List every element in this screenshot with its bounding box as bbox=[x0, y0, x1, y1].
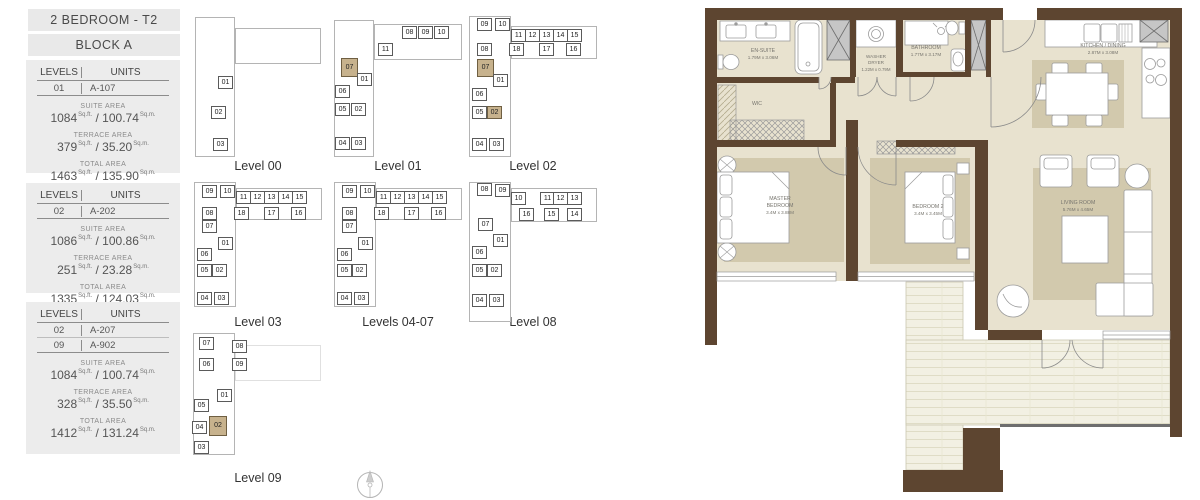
chair-icon bbox=[1086, 115, 1102, 126]
level-unit-row: 09A-902 bbox=[37, 337, 169, 352]
key-plan-levels-04-07: 091011121314150818171607010605020403Leve… bbox=[330, 180, 466, 329]
unit-cell-08: 08 bbox=[477, 43, 492, 56]
bedroom2-label: BEDROOM 2 bbox=[912, 204, 943, 210]
unit-cell-05: 05 bbox=[197, 264, 212, 277]
unit-cell-03: 03 bbox=[489, 138, 504, 151]
wic-label: WIC bbox=[752, 101, 762, 107]
unit-cell-04: 04 bbox=[335, 137, 350, 150]
unit-cell-06: 06 bbox=[197, 248, 212, 261]
suite-area-label: SUITE AREA bbox=[35, 360, 171, 367]
unit-cell-11: 11 bbox=[511, 29, 526, 42]
ensuite-label: EN-SUITE bbox=[751, 48, 776, 54]
unit-cell-08: 08 bbox=[402, 26, 417, 39]
unit-cell-07-highlighted: 07 bbox=[341, 58, 358, 77]
unit-cell-08: 08 bbox=[232, 340, 247, 353]
total-area-label: TOTAL AREA bbox=[35, 418, 171, 425]
unit-cell-13: 13 bbox=[404, 191, 419, 204]
key-plan-level-03: 091011121314150818171607010605020403Leve… bbox=[190, 180, 326, 329]
dining-table bbox=[1046, 73, 1108, 115]
nightstand-icon bbox=[957, 248, 969, 259]
terrace-area-label: TERRACE AREA bbox=[35, 255, 171, 262]
unit-cell-02-highlighted: 02 bbox=[209, 416, 227, 436]
key-plan-caption: Level 00 bbox=[190, 159, 326, 173]
sofa-chaise bbox=[1096, 283, 1153, 316]
unit-cell-14: 14 bbox=[567, 208, 582, 221]
unit-type-title: 2 BEDROOM - T2 bbox=[28, 9, 180, 31]
unit-cell-06: 06 bbox=[199, 358, 214, 371]
suite-area: SUITE AREA1084Sq.ft. / 100.74Sq.m. bbox=[35, 103, 171, 125]
unit-cell-16: 16 bbox=[291, 207, 306, 220]
unit-cell-18: 18 bbox=[509, 43, 524, 56]
sink-icon bbox=[756, 25, 776, 38]
unit-cell-06: 06 bbox=[337, 248, 352, 261]
levels-units-header: LEVELSUNITS bbox=[37, 189, 169, 204]
building-wing bbox=[235, 28, 321, 64]
living-room-dims: 5.76M x 4.65M bbox=[1063, 207, 1094, 212]
unit-cell-12: 12 bbox=[250, 191, 265, 204]
unit-cell-05: 05 bbox=[335, 103, 350, 116]
unit-cell-18: 18 bbox=[234, 207, 249, 220]
unit-cell-12: 12 bbox=[553, 192, 568, 205]
suite-area-value: 1086Sq.ft. / 100.86Sq.m. bbox=[35, 234, 171, 248]
toilet-icon bbox=[718, 55, 723, 69]
washer-label: WASHER bbox=[866, 54, 887, 59]
unit-cell-08: 08 bbox=[202, 207, 217, 220]
floor-plan: EN-SUITE 1.79M x 3.06M WIC WASHER DRYER … bbox=[700, 0, 1200, 500]
unit-cell-10: 10 bbox=[434, 26, 449, 39]
toilet-icon bbox=[959, 22, 965, 34]
unit-cell-02: 02 bbox=[487, 264, 502, 277]
levels-units-header: LEVELSUNITS bbox=[37, 308, 169, 323]
unit-cell-02: 02 bbox=[212, 264, 227, 277]
key-plan-level-01: 0809101107010605020403Level 01 bbox=[330, 10, 466, 173]
unit-cell-04: 04 bbox=[337, 292, 352, 305]
beanbag-icon bbox=[997, 285, 1029, 317]
living-room-label: LIVING ROOM bbox=[1061, 200, 1096, 206]
north-compass-icon bbox=[350, 468, 390, 500]
closet-icon bbox=[730, 120, 804, 143]
chair-icon bbox=[1052, 115, 1068, 126]
unit-cell-11: 11 bbox=[378, 43, 393, 56]
total-area-value: 1463Sq.ft. / 135.90Sq.m. bbox=[35, 169, 171, 183]
pillow-icon bbox=[720, 175, 732, 195]
unit-cell-05: 05 bbox=[472, 264, 487, 277]
unit-cell-03: 03 bbox=[214, 292, 229, 305]
unit-cell-16: 16 bbox=[566, 43, 581, 56]
levels-units-header: LEVELSUNITS bbox=[37, 66, 169, 81]
unit-cell-02: 02 bbox=[211, 106, 226, 119]
key-plan-caption: Levels 04-07 bbox=[330, 315, 466, 329]
kitchen-sink-icon bbox=[1084, 24, 1100, 42]
chair-icon bbox=[1052, 63, 1068, 74]
level-unit-row: 02A-207 bbox=[37, 323, 169, 337]
unit-cell-15: 15 bbox=[432, 191, 447, 204]
unit-cell-09: 09 bbox=[202, 185, 217, 198]
total-area: TOTAL AREA1463Sq.ft. / 135.90Sq.m. bbox=[35, 161, 171, 183]
total-area: TOTAL AREA1412Sq.ft. / 131.24Sq.m. bbox=[35, 418, 171, 440]
unit-cell-01: 01 bbox=[357, 73, 372, 86]
unit-cell-04: 04 bbox=[197, 292, 212, 305]
unit-cell-07: 07 bbox=[202, 220, 217, 233]
chair-icon bbox=[1036, 84, 1047, 100]
unit-cell-02: 02 bbox=[351, 103, 366, 116]
key-plan-level-00: 010203Level 00 bbox=[190, 10, 326, 173]
unit-cell-11: 11 bbox=[236, 191, 251, 204]
unit-cell-05: 05 bbox=[337, 264, 352, 277]
unit-cell-18: 18 bbox=[374, 207, 389, 220]
unit-cell-09: 09 bbox=[495, 184, 510, 197]
terrace-wall bbox=[903, 470, 1003, 492]
level-unit-row: 02A-202 bbox=[37, 204, 169, 218]
chair-icon bbox=[1086, 63, 1102, 74]
terrace-area: TERRACE AREA328Sq.ft. / 35.50Sq.m. bbox=[35, 389, 171, 411]
unit-cell-04: 04 bbox=[472, 138, 487, 151]
unit-cell-10: 10 bbox=[495, 18, 510, 31]
unit-cell-09: 09 bbox=[477, 18, 492, 31]
round-table-icon bbox=[1125, 164, 1149, 188]
drainboard-icon bbox=[1119, 24, 1132, 42]
unit-cell-10: 10 bbox=[360, 185, 375, 198]
bathroom-dims: 1.77M x 3.17M bbox=[911, 52, 942, 57]
total-area-label: TOTAL AREA bbox=[35, 284, 171, 291]
unit-cell-08: 08 bbox=[342, 207, 357, 220]
key-plan-level-09: 070806090105020403Level 09 bbox=[190, 330, 326, 485]
unit-cell-01: 01 bbox=[218, 76, 233, 89]
key-plan-level-02: 091011121314150818171607010605020403Leve… bbox=[465, 10, 601, 173]
terrace-area: TERRACE AREA251Sq.ft. / 23.28Sq.m. bbox=[35, 255, 171, 277]
master-bedroom-dims: 3.4M x 3.88M bbox=[766, 210, 794, 215]
unit-info-card: LEVELSUNITS01A-107SUITE AREA1084Sq.ft. /… bbox=[26, 60, 180, 173]
washer-dryer-icon bbox=[856, 20, 896, 47]
pillow-icon bbox=[943, 175, 953, 195]
unit-cell-01: 01 bbox=[218, 237, 233, 250]
kitchen-dims: 2.87M x 3.08M bbox=[1088, 50, 1119, 55]
svg-text:DRYER: DRYER bbox=[868, 60, 885, 65]
unit-cell-13: 13 bbox=[264, 191, 279, 204]
unit-cell-03: 03 bbox=[194, 441, 209, 454]
nightstand-icon bbox=[957, 163, 969, 174]
master-bedroom-label: MASTER bbox=[769, 196, 791, 202]
ensuite-dims: 1.79M x 3.06M bbox=[748, 55, 779, 60]
chair-icon bbox=[1107, 84, 1118, 100]
unit-cell-10: 10 bbox=[220, 185, 235, 198]
unit-cell-09: 09 bbox=[342, 185, 357, 198]
unit-cell-04: 04 bbox=[472, 294, 487, 307]
unit-cell-15: 15 bbox=[567, 29, 582, 42]
key-plan-level-08: 08091011121316151407010605020403Level 08 bbox=[465, 180, 601, 329]
sink-icon bbox=[726, 25, 746, 38]
unit-cell-12: 12 bbox=[390, 191, 405, 204]
unit-cell-01: 01 bbox=[217, 389, 232, 402]
block-name: BLOCK A bbox=[28, 34, 180, 56]
shower-head-icon bbox=[938, 28, 945, 35]
terrace-area-label: TERRACE AREA bbox=[35, 389, 171, 396]
unit-cell-12: 12 bbox=[525, 29, 540, 42]
unit-cell-03: 03 bbox=[213, 138, 228, 151]
level-unit-row: 01A-107 bbox=[37, 81, 169, 95]
unit-cell-05: 05 bbox=[194, 399, 209, 412]
unit-cell-06: 06 bbox=[472, 88, 487, 101]
unit-cell-01: 01 bbox=[493, 234, 508, 247]
bathroom-label: BATHROOM bbox=[911, 45, 941, 51]
washer-dims: 1.22M x 0.79M bbox=[861, 67, 890, 72]
unit-cell-06: 06 bbox=[472, 246, 487, 259]
unit-cell-13: 13 bbox=[539, 29, 554, 42]
key-plan-caption: Level 03 bbox=[190, 315, 326, 329]
unit-cell-08: 08 bbox=[477, 183, 492, 196]
unit-cell-07: 07 bbox=[342, 220, 357, 233]
key-plan-caption: Level 09 bbox=[190, 471, 326, 485]
terrace-railing bbox=[1000, 424, 1170, 427]
unit-cell-16: 16 bbox=[431, 207, 446, 220]
terrace-area-value: 251Sq.ft. / 23.28Sq.m. bbox=[35, 263, 171, 277]
suite-area: SUITE AREA1086Sq.ft. / 100.86Sq.m. bbox=[35, 226, 171, 248]
unit-cell-07-highlighted: 07 bbox=[477, 59, 494, 77]
unit-cell-17: 17 bbox=[539, 43, 554, 56]
floorplan-brochure-page: 2 BEDROOM - T2 BLOCK A LEVELSUNITS01A-10… bbox=[0, 0, 1200, 500]
unit-cell-01: 01 bbox=[358, 237, 373, 250]
unit-cell-15: 15 bbox=[292, 191, 307, 204]
terrace-area-label: TERRACE AREA bbox=[35, 132, 171, 139]
unit-cell-03: 03 bbox=[489, 294, 504, 307]
unit-cell-05: 05 bbox=[472, 106, 487, 119]
unit-cell-14: 14 bbox=[553, 29, 568, 42]
unit-cell-09: 09 bbox=[232, 358, 247, 371]
svg-text:BEDROOM: BEDROOM bbox=[767, 203, 794, 209]
suite-area-label: SUITE AREA bbox=[35, 103, 171, 110]
unit-cell-14: 14 bbox=[278, 191, 293, 204]
unit-cell-03: 03 bbox=[351, 137, 366, 150]
unit-info-card: LEVELSUNITS02A-202SUITE AREA1086Sq.ft. /… bbox=[26, 183, 180, 293]
key-plan-caption: Level 01 bbox=[330, 159, 466, 173]
terrace-area: TERRACE AREA379Sq.ft. / 35.20Sq.m. bbox=[35, 132, 171, 154]
unit-cell-02-highlighted: 02 bbox=[487, 106, 502, 119]
unit-cell-11: 11 bbox=[376, 191, 391, 204]
unit-cell-07: 07 bbox=[478, 218, 493, 231]
terrace-area-value: 379Sq.ft. / 35.20Sq.m. bbox=[35, 140, 171, 154]
unit-cell-06: 06 bbox=[335, 85, 350, 98]
unit-cell-03: 03 bbox=[354, 292, 369, 305]
unit-cell-07: 07 bbox=[199, 337, 214, 350]
coffee-table bbox=[1062, 216, 1108, 263]
unit-cell-04: 04 bbox=[192, 421, 207, 434]
unit-cell-09: 09 bbox=[418, 26, 433, 39]
unit-cell-02: 02 bbox=[352, 264, 367, 277]
unit-cell-16: 16 bbox=[519, 208, 534, 221]
unit-info-card: LEVELSUNITS02A-20709A-902SUITE AREA1084S… bbox=[26, 302, 180, 454]
key-plan-caption: Level 02 bbox=[465, 159, 601, 173]
unit-cell-15: 15 bbox=[544, 208, 559, 221]
suite-area-value: 1084Sq.ft. / 100.74Sq.m. bbox=[35, 368, 171, 382]
unit-cell-10: 10 bbox=[511, 192, 526, 205]
unit-cell-14: 14 bbox=[418, 191, 433, 204]
bedroom2-dims: 3.4M x 3.45M bbox=[914, 211, 942, 216]
suite-area-label: SUITE AREA bbox=[35, 226, 171, 233]
suite-area: SUITE AREA1084Sq.ft. / 100.74Sq.m. bbox=[35, 360, 171, 382]
burner-icon bbox=[1145, 59, 1156, 70]
terrace-area-value: 328Sq.ft. / 35.50Sq.m. bbox=[35, 397, 171, 411]
unit-cell-01: 01 bbox=[493, 74, 508, 87]
kitchen-label: KITCHEN / DINING bbox=[1080, 43, 1125, 49]
unit-cell-13: 13 bbox=[567, 192, 582, 205]
total-area-label: TOTAL AREA bbox=[35, 161, 171, 168]
suite-area-value: 1084Sq.ft. / 100.74Sq.m. bbox=[35, 111, 171, 125]
total-area-value: 1412Sq.ft. / 131.24Sq.m. bbox=[35, 426, 171, 440]
building-wing bbox=[235, 345, 321, 381]
unit-cell-17: 17 bbox=[404, 207, 419, 220]
unit-cell-17: 17 bbox=[264, 207, 279, 220]
